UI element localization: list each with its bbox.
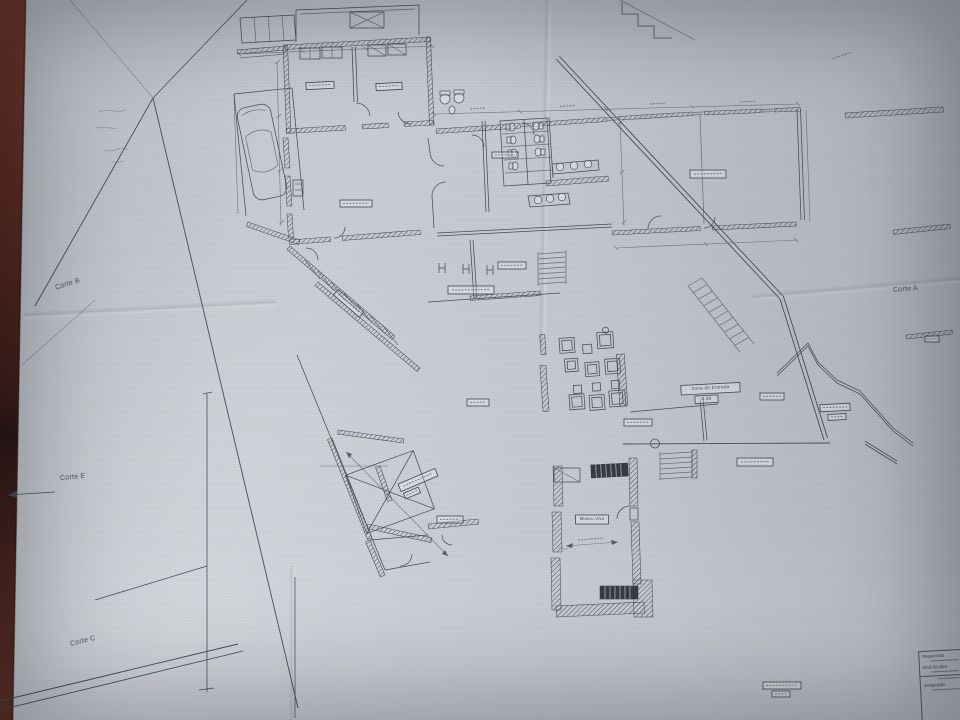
title-block-smudge — [938, 677, 960, 679]
garage-car — [234, 88, 318, 260]
car-top-view — [236, 102, 289, 201]
title-block-smudge — [931, 670, 959, 672]
terrace-edge — [630, 404, 718, 412]
dimension-lines — [234, 44, 810, 250]
museum-building — [551, 458, 653, 617]
site-boundary-lines — [0, 0, 298, 718]
pencil-scribbles — [96, 109, 128, 162]
title-block-applicant: Requerente — [922, 652, 960, 659]
terrace-tables — [538, 326, 629, 414]
entrance-and-boundary — [556, 0, 913, 480]
title-block-smudge — [932, 688, 960, 690]
title-block: Requerente local da obra designação — [918, 649, 960, 720]
photo-of-floor-plan: Corte B Corte E Corte C Corte A Zona de … — [0, 0, 960, 720]
bedroom-block — [237, 5, 434, 134]
title-block-designation: designação — [924, 681, 960, 688]
washroom-block — [440, 90, 609, 212]
ramp — [287, 246, 430, 577]
title-block-site: local da obra — [923, 663, 960, 670]
floor-plan-drawing — [0, 0, 960, 720]
living-block — [283, 138, 446, 245]
title-block-smudge — [931, 659, 959, 661]
paper-edge — [13, 0, 26, 720]
x-braced-area — [320, 430, 479, 556]
